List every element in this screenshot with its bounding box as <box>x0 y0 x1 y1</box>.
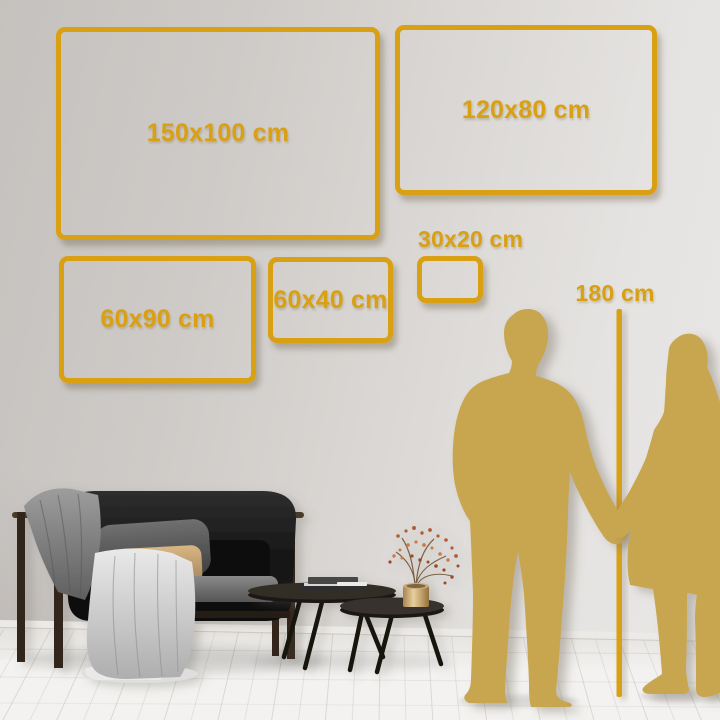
size-frame-60x40: 60x40 cm <box>268 257 393 343</box>
size-frame-label: 30x20 cm <box>418 226 523 253</box>
size-frame-30x20: 30x20 cm <box>417 256 483 303</box>
size-frame-label: 60x90 cm <box>59 256 256 383</box>
size-frames-layer: 150x100 cm120x80 cm60x90 cm60x40 cm30x20… <box>0 0 720 720</box>
size-frame-label: 60x40 cm <box>268 257 393 343</box>
size-frame-120x80: 120x80 cm <box>395 25 657 195</box>
size-frame-label: 120x80 cm <box>395 25 657 195</box>
wall-art-size-guide-image: 150x100 cm120x80 cm60x90 cm60x40 cm30x20… <box>0 0 720 720</box>
size-frame-60x90: 60x90 cm <box>59 256 256 383</box>
size-frame-label: 150x100 cm <box>56 27 380 240</box>
size-frame-150x100: 150x100 cm <box>56 27 380 240</box>
height-label: 180 cm <box>575 280 654 307</box>
